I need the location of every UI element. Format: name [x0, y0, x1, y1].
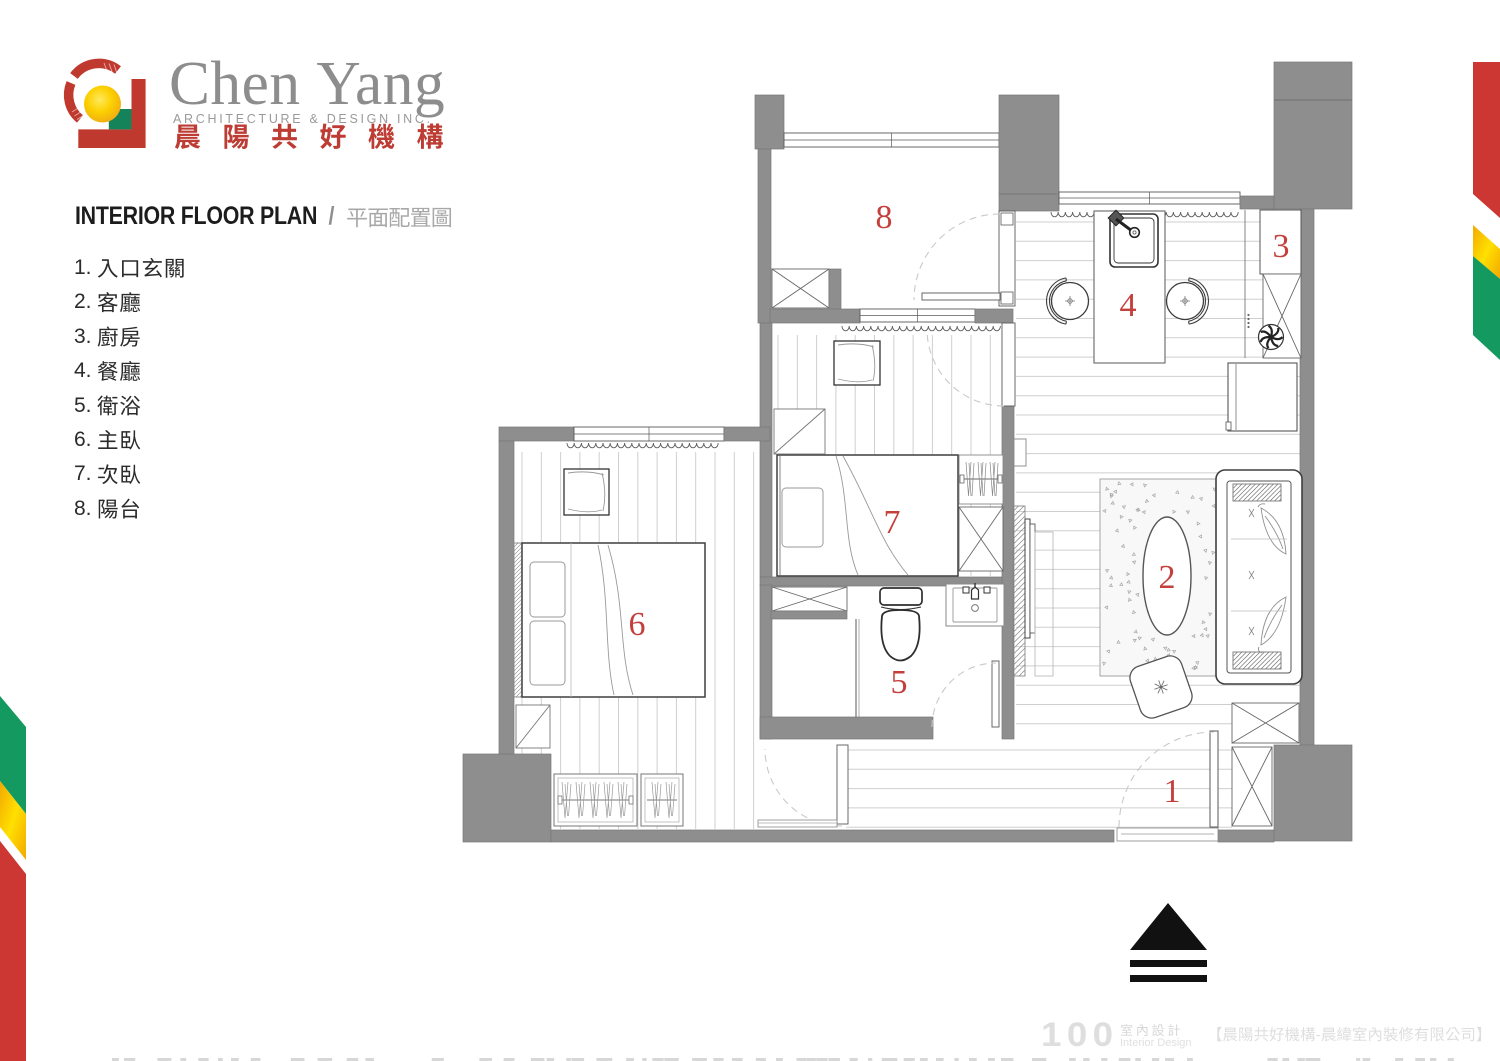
- svg-text:1: 1: [1164, 773, 1181, 810]
- svg-text:2: 2: [1159, 559, 1176, 596]
- svg-text:7: 7: [884, 504, 901, 541]
- svg-text:6: 6: [629, 606, 646, 643]
- svg-text:3: 3: [1273, 228, 1290, 265]
- svg-text:4: 4: [1120, 287, 1137, 324]
- svg-text:8: 8: [876, 199, 893, 236]
- svg-text:5: 5: [891, 664, 908, 701]
